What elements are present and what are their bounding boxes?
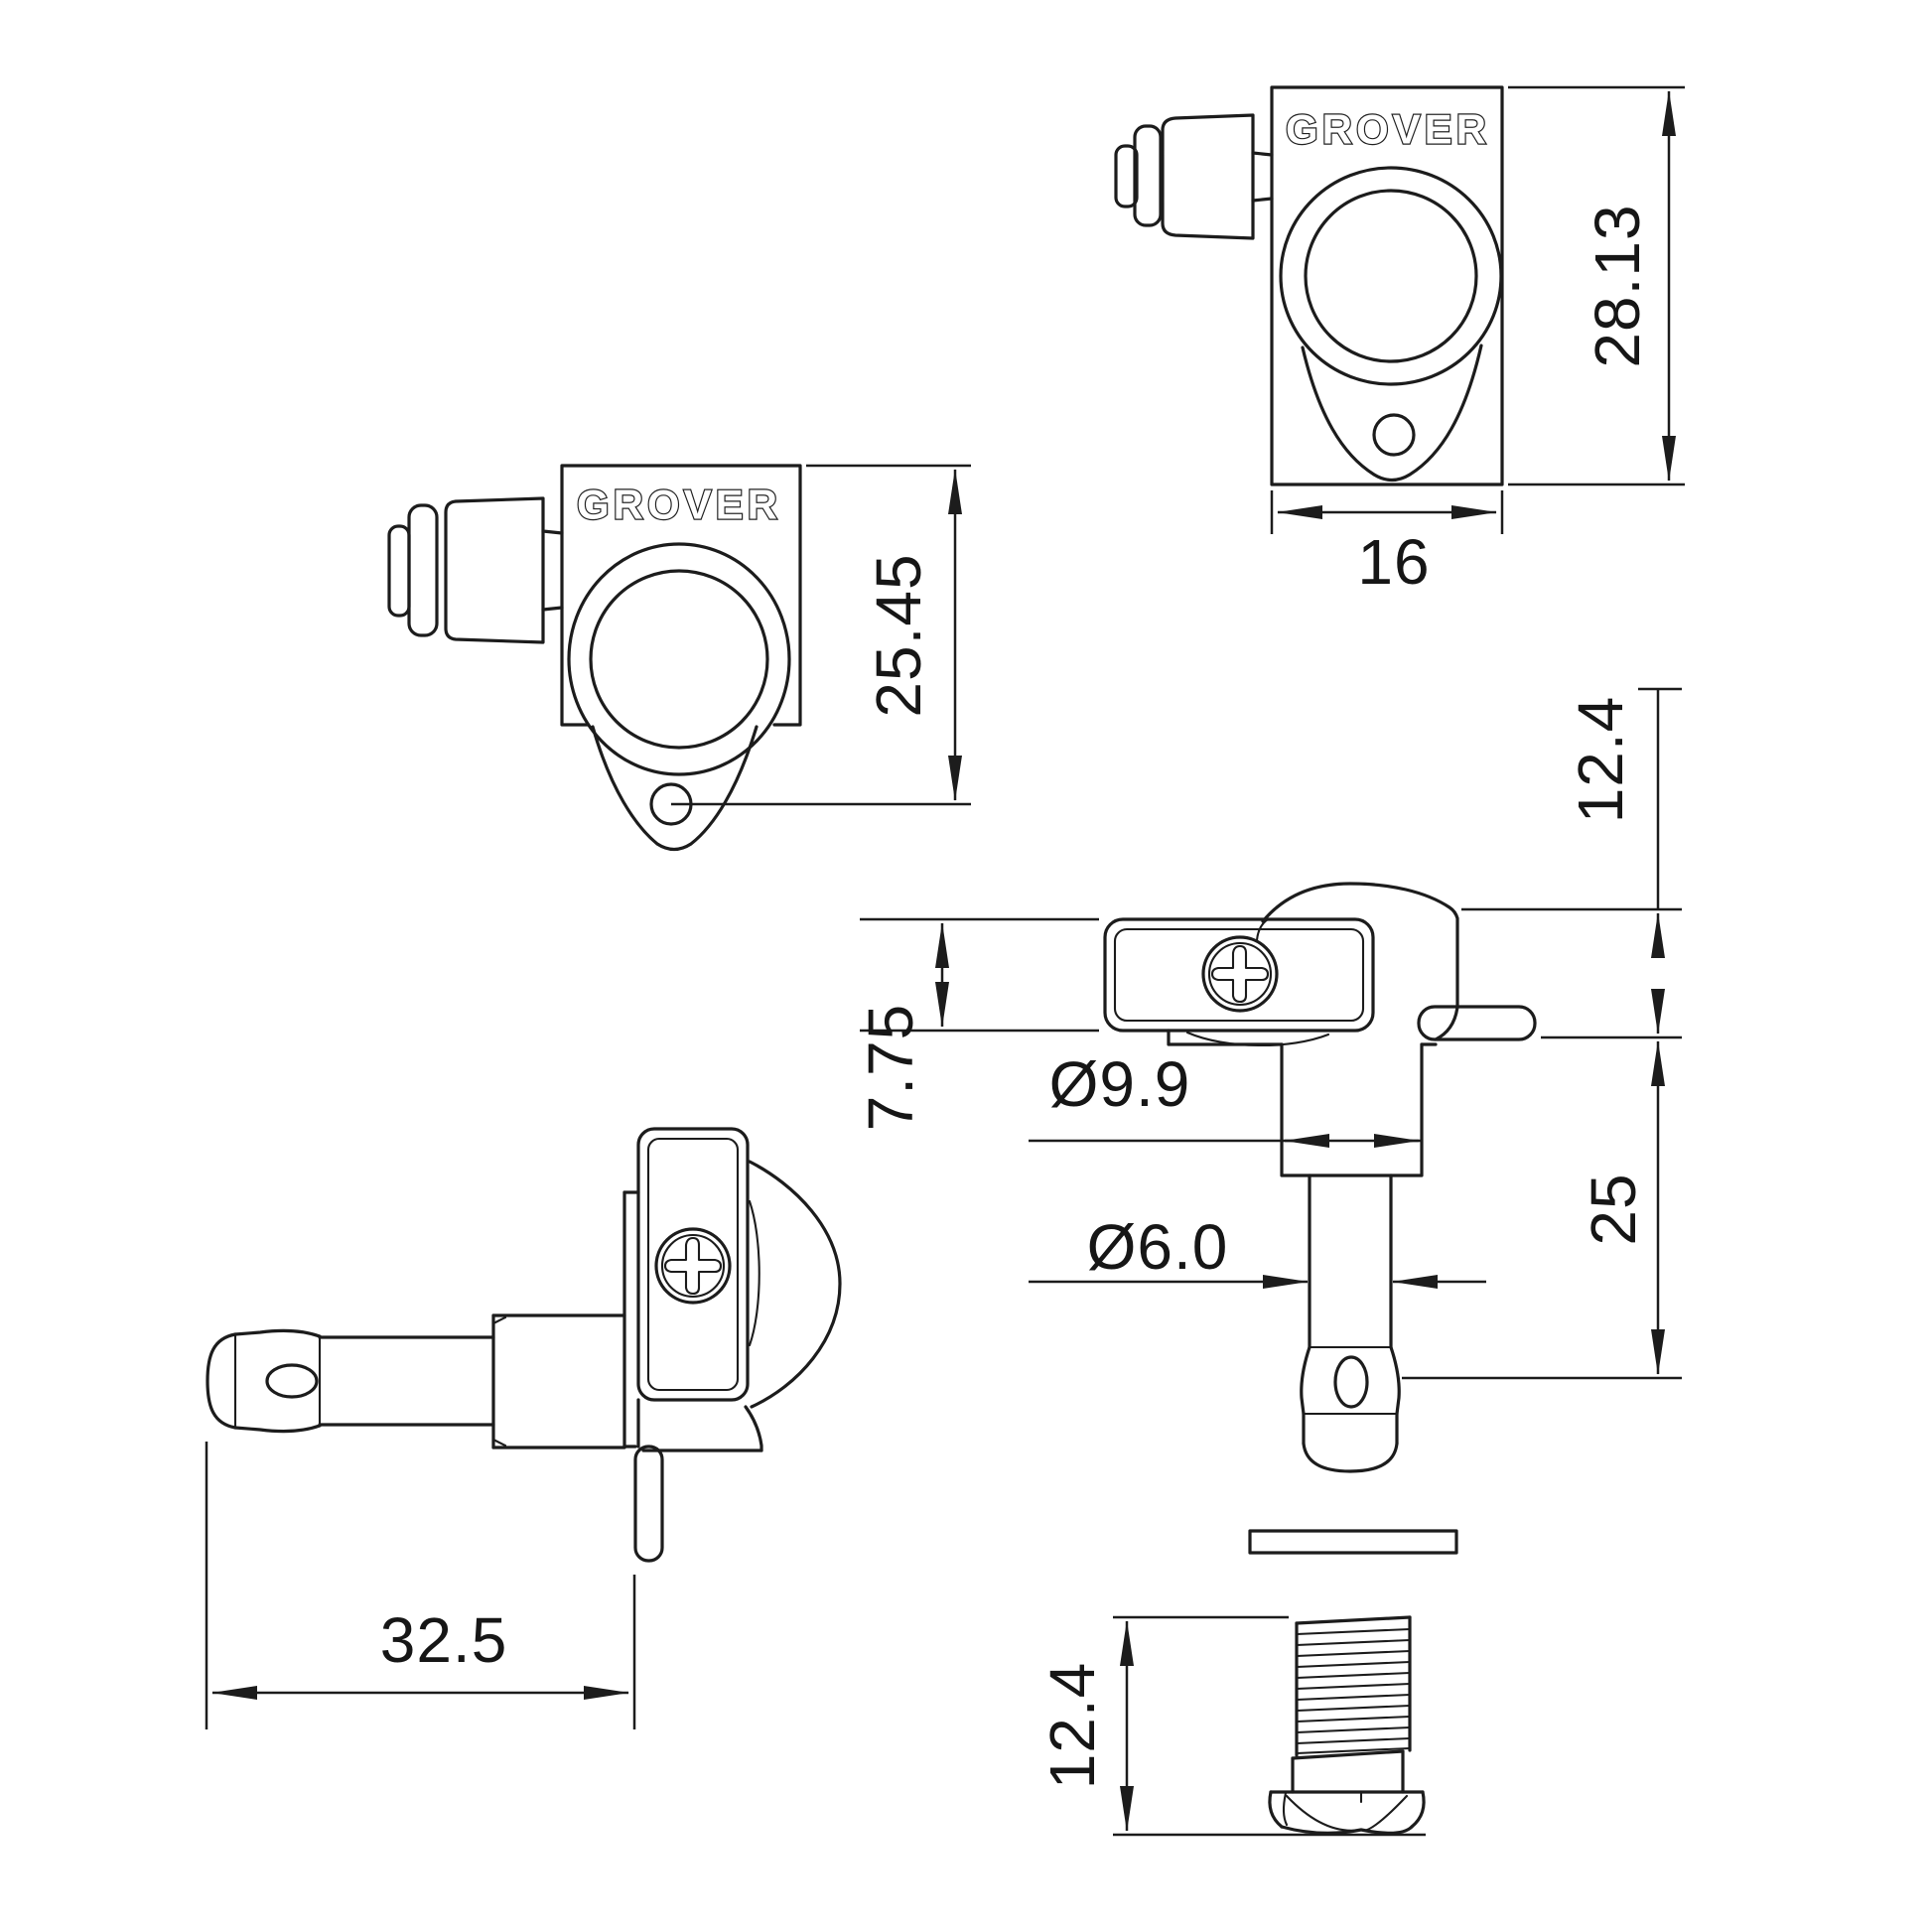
dim-label-12-4-top: 12.4 <box>1565 696 1636 824</box>
dim-bushing-length: 12.4 <box>1036 1617 1426 1835</box>
tuner-button <box>1116 115 1272 238</box>
dim-label-28-13: 28.13 <box>1582 204 1653 367</box>
dim-label-25: 25 <box>1578 1173 1649 1245</box>
button-inner-arc <box>750 1201 759 1345</box>
string-hole <box>267 1365 317 1397</box>
bushing-collar <box>1293 1751 1403 1792</box>
dim-plate-width: 16 <box>1272 490 1502 598</box>
dim-label-25-45: 25.45 <box>863 553 934 717</box>
washer-ring-inner <box>1306 191 1476 361</box>
dim-overall-depth: 32.5 <box>207 1442 634 1729</box>
phillips-screw-icon <box>656 1229 730 1303</box>
washer-ring-inner <box>591 571 767 748</box>
phillips-screw-icon <box>1203 937 1277 1011</box>
dim-label-7-75: 7.75 <box>855 1004 926 1132</box>
string-post <box>1302 1175 1399 1471</box>
dim-label-12-4-bushing: 12.4 <box>1036 1662 1108 1790</box>
dim-label-9-9: Ø9.9 <box>1049 1048 1191 1120</box>
dim-label-32-5: 32.5 <box>380 1604 508 1676</box>
tuner-technical-drawing: GROVER 28.13 16 GROVER <box>0 0 1932 1932</box>
front-view-teardrop-style: GROVER 25.45 <box>389 466 971 850</box>
gear-housing-lower <box>643 1407 761 1450</box>
dim-above-headstock: 12.4 <box>1461 689 1682 1037</box>
side-view-vertical: 7.75 Ø9.9 Ø6.0 12.4 25 <box>855 689 1682 1471</box>
teardrop-boss <box>593 727 757 850</box>
dim-post-length: 25 <box>1402 1041 1682 1378</box>
front-view-plate-style: GROVER 28.13 16 <box>1116 87 1685 598</box>
washer-ring-outer <box>569 544 789 774</box>
washer <box>1250 1531 1456 1553</box>
dim-post-diameter: Ø6.0 <box>1029 1211 1486 1283</box>
plate-tail-tab <box>635 1447 662 1561</box>
plate-tail-tab <box>1419 1007 1535 1039</box>
dim-bushing-diameter: Ø9.9 <box>1029 1048 1422 1157</box>
side-view-horizontal: 32.5 <box>207 1129 840 1729</box>
string-hole <box>1335 1357 1367 1407</box>
washer-ring-outer <box>1281 168 1501 384</box>
thread-section <box>1297 1617 1410 1755</box>
tuner-button <box>389 498 562 642</box>
grover-logo: GROVER <box>1286 106 1490 153</box>
dim-label-6-0: Ø6.0 <box>1087 1211 1229 1283</box>
button-end-nub <box>389 526 409 616</box>
mounting-screw-hole <box>1374 415 1414 455</box>
post-bushing-section <box>493 1315 624 1448</box>
button-end-ring <box>1135 126 1161 225</box>
dim-overall-height: 28.13 <box>1508 87 1685 484</box>
grover-logo: GROVER <box>577 482 781 528</box>
drawing-sheet: GROVER 28.13 16 GROVER <box>0 0 1932 1932</box>
post-bushing-section <box>1282 1044 1422 1175</box>
button-dome-silhouette <box>750 1162 840 1407</box>
threaded-bushing: 12.4 <box>1036 1617 1426 1835</box>
mounting-plate-edge <box>624 1192 638 1447</box>
dim-label-16: 16 <box>1357 526 1430 598</box>
string-post <box>207 1330 493 1431</box>
button-end-ring <box>409 505 437 635</box>
bushing-flange <box>1270 1792 1424 1833</box>
